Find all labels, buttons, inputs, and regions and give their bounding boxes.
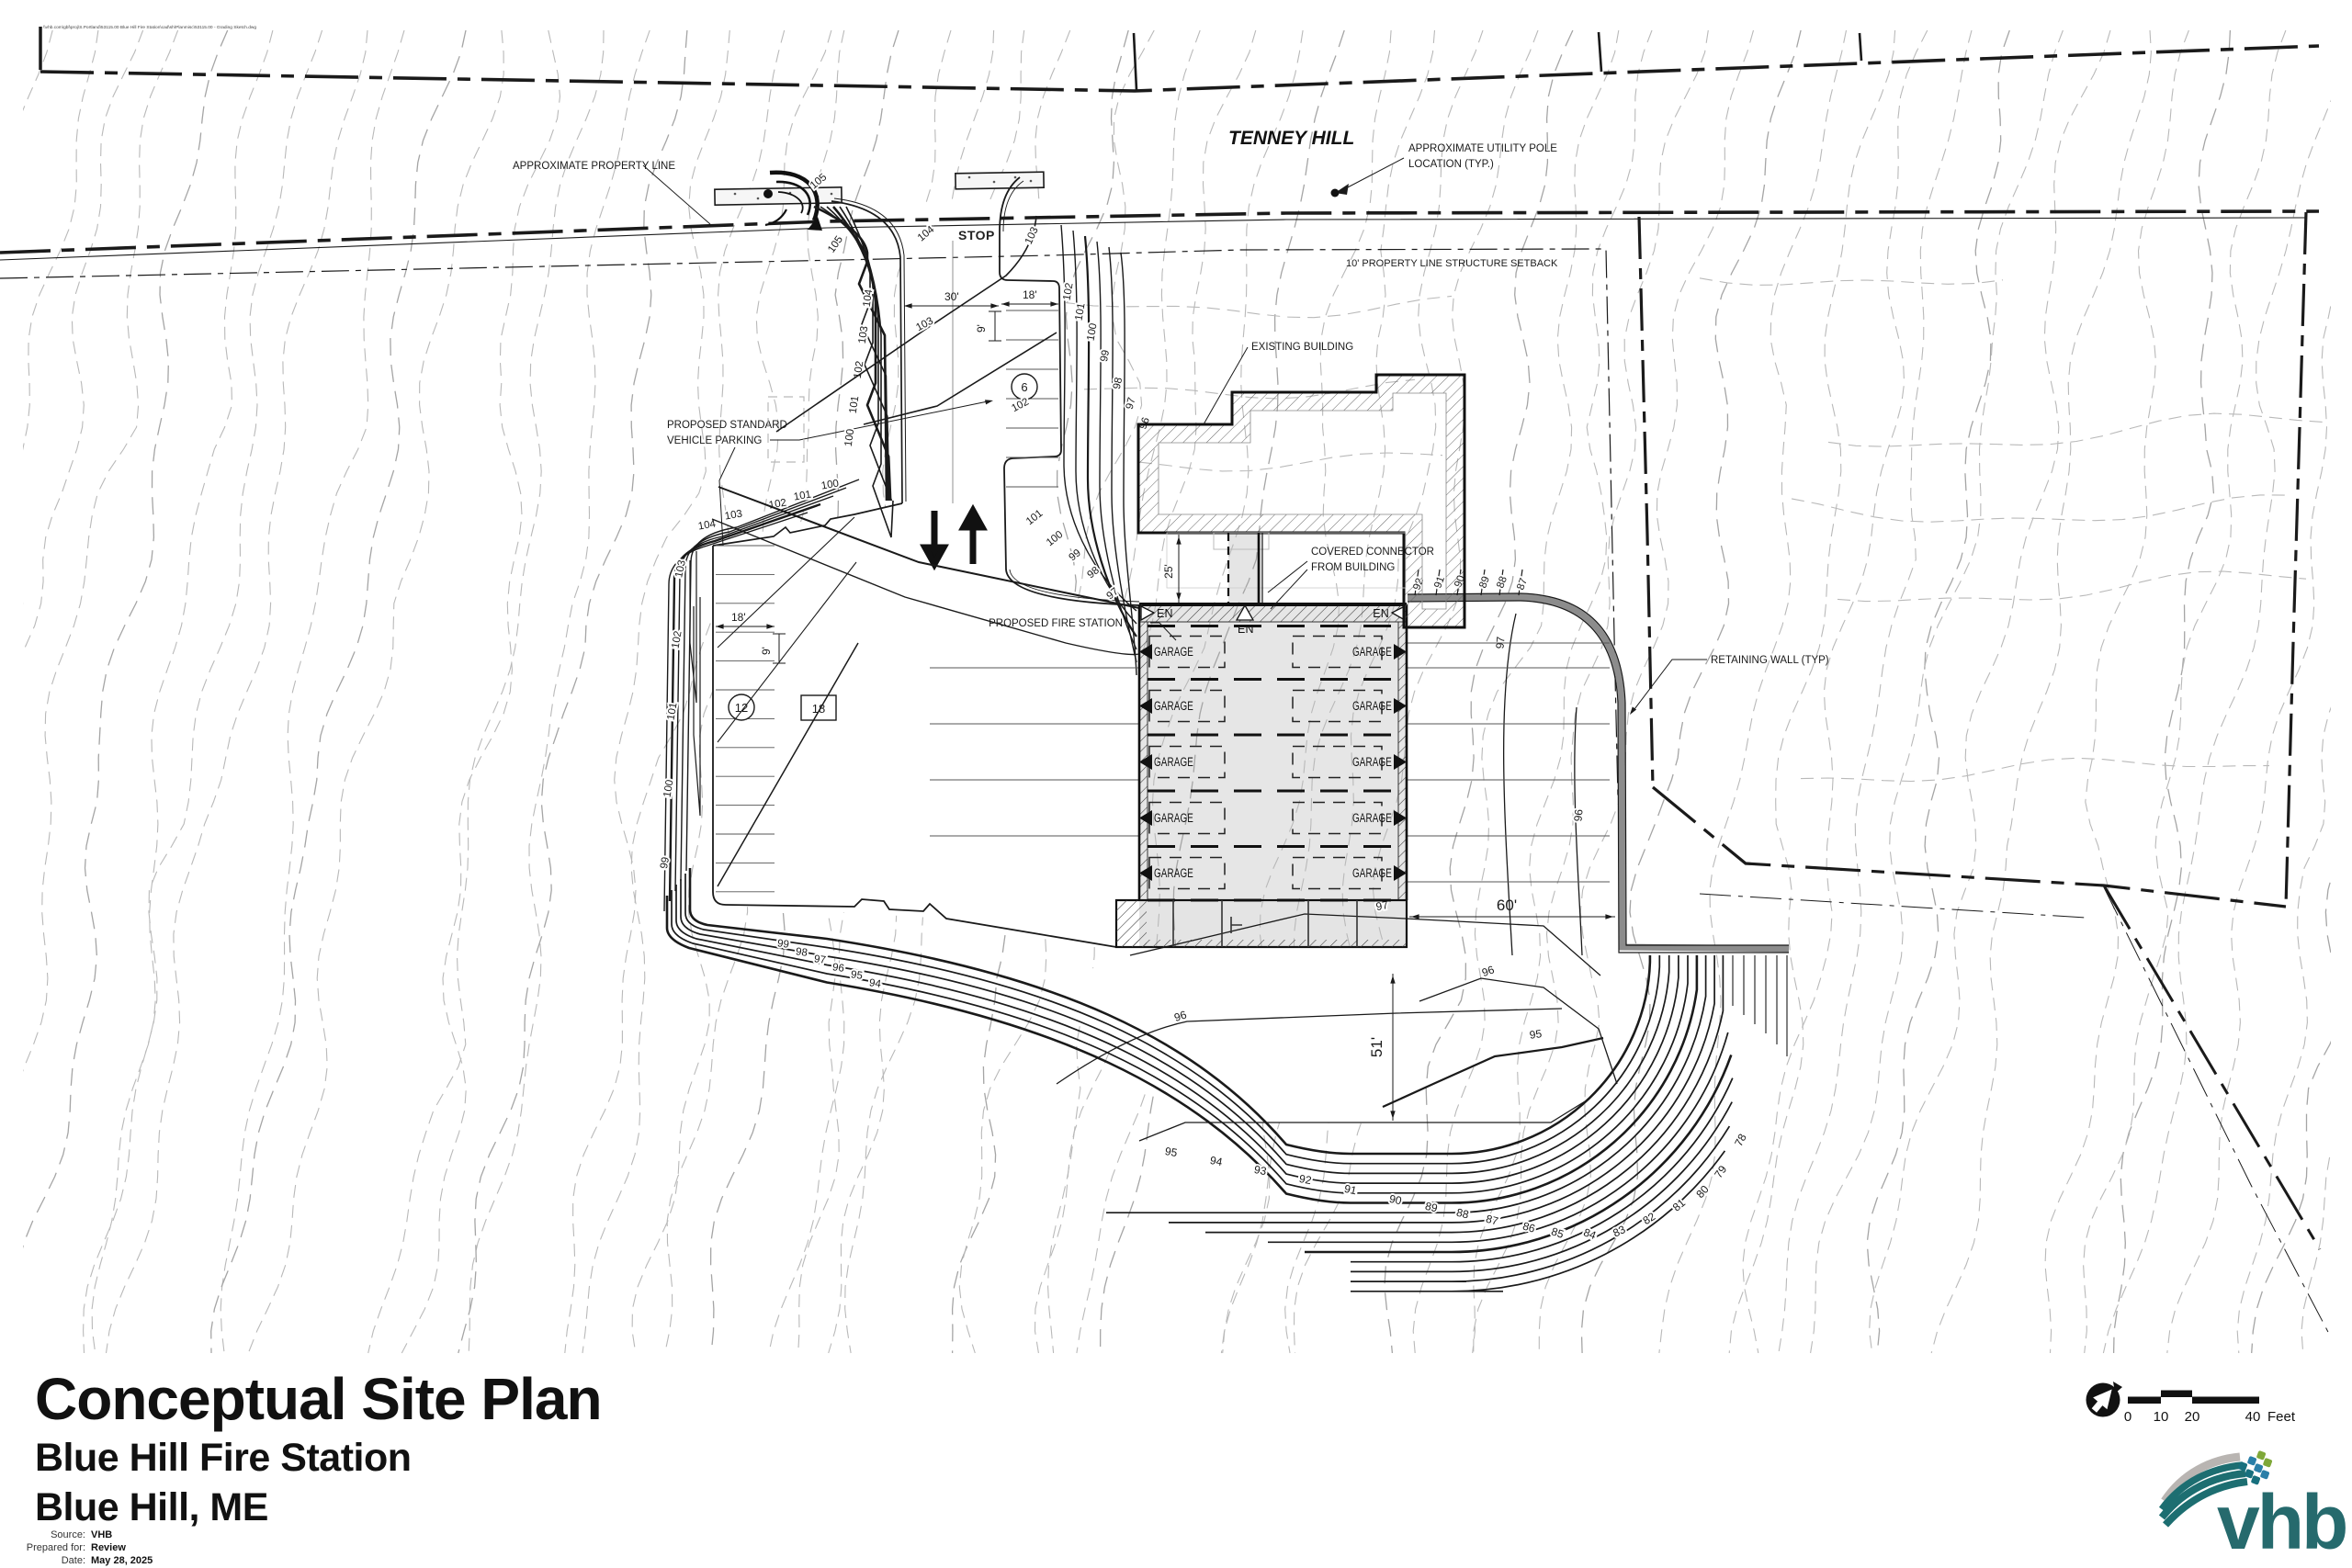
svg-text:Source:: Source: [51,1529,85,1540]
svg-text:Conceptual Site Plan: Conceptual Site Plan [35,1366,602,1432]
svg-text:40: 40 [2245,1409,2261,1425]
svg-text:96: 96 [1571,808,1585,822]
svg-text:20: 20 [2185,1409,2200,1425]
svg-text:0: 0 [2124,1409,2131,1425]
svg-text:51': 51' [1368,1037,1385,1057]
svg-text:GARAGE: GARAGE [1352,866,1392,880]
svg-text:May 28, 2025: May 28, 2025 [91,1555,153,1566]
svg-text:STOP: STOP [958,228,995,243]
svg-text:99: 99 [776,938,789,951]
svg-text:97: 97 [813,953,826,966]
svg-text:97: 97 [1493,636,1507,649]
svg-text:Review: Review [91,1542,126,1553]
svg-text:10: 10 [2154,1409,2169,1425]
svg-text:Date:: Date: [62,1555,85,1566]
svg-text:LOCATION (TYP.): LOCATION (TYP.) [1408,159,1494,170]
svg-text:60': 60' [1497,897,1517,914]
svg-text:12: 12 [735,701,748,715]
svg-text:vhb: vhb [2217,1479,2346,1565]
svg-text:GARAGE: GARAGE [1352,755,1392,769]
svg-text:18': 18' [731,611,746,624]
svg-text:EN: EN [1373,607,1389,620]
svg-text:GARAGE: GARAGE [1352,645,1392,659]
svg-text:98: 98 [795,946,808,959]
svg-text:VHB: VHB [91,1529,112,1540]
svg-text:99: 99 [1099,349,1112,363]
svg-text:GARAGE: GARAGE [1352,699,1392,713]
svg-text:95: 95 [1529,1027,1543,1042]
svg-text:GARAGE: GARAGE [1154,811,1193,825]
svg-text:\\vhb.com\gbl\proj\S.Portland\: \\vhb.com\gbl\proj\S.Portland\53115.00 B… [43,25,256,30]
svg-text:PROPOSED FIRE STATION: PROPOSED FIRE STATION [989,618,1123,629]
svg-text:COVERED CONNECTOR: COVERED CONNECTOR [1311,547,1434,558]
svg-text:APPROXIMATE UTILITY POLE: APPROXIMATE UTILITY POLE [1408,143,1557,154]
svg-text:PROPOSED STANDARD: PROPOSED STANDARD [667,420,787,431]
svg-text:6: 6 [1021,380,1027,394]
svg-text:96: 96 [831,962,844,975]
svg-text:25': 25' [1162,564,1175,579]
svg-text:GARAGE: GARAGE [1154,866,1193,880]
svg-text:Feet: Feet [2267,1409,2296,1425]
svg-text:9': 9' [975,324,988,333]
svg-text:EXISTING BUILDING: EXISTING BUILDING [1251,342,1353,353]
svg-text:TENNEY HILL: TENNEY HILL [1228,128,1354,149]
svg-text:Blue Hill, ME: Blue Hill, ME [35,1485,268,1529]
svg-text:30': 30' [944,290,959,303]
svg-text:GARAGE: GARAGE [1154,645,1193,659]
svg-text:APPROXIMATE PROPERTY LINE: APPROXIMATE PROPERTY LINE [513,161,675,172]
svg-text:FROM BUILDING: FROM BUILDING [1311,562,1395,573]
svg-text:99: 99 [659,856,672,870]
svg-text:9': 9' [760,647,773,655]
svg-text:94: 94 [868,977,882,990]
svg-text:GARAGE: GARAGE [1352,811,1392,825]
svg-text:Blue Hill Fire Station: Blue Hill Fire Station [35,1436,412,1480]
svg-text:GARAGE: GARAGE [1154,699,1193,713]
svg-text:95: 95 [1164,1145,1179,1159]
svg-text:EN: EN [1157,607,1173,620]
svg-text:95: 95 [850,969,863,982]
svg-text:GARAGE: GARAGE [1154,755,1193,769]
svg-text:RETAINING WALL (TYP): RETAINING WALL (TYP) [1711,655,1829,666]
svg-text:VEHICLE PARKING: VEHICLE PARKING [667,435,762,446]
svg-text:EN: EN [1238,623,1254,636]
svg-text:18': 18' [1023,288,1037,301]
svg-text:10' PROPERTY LINE STRUCTURE SE: 10' PROPERTY LINE STRUCTURE SETBACK [1346,258,1558,269]
svg-text:Prepared for:: Prepared for: [27,1542,85,1553]
